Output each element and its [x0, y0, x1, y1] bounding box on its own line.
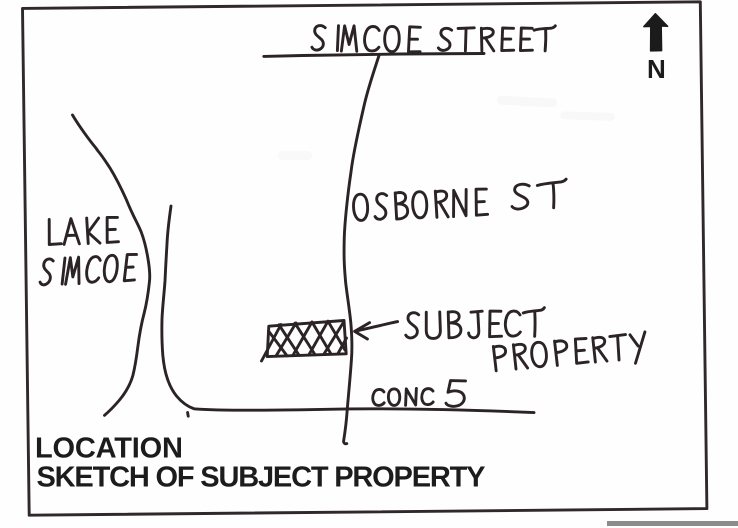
svg-text:LOCATION: LOCATION: [35, 433, 183, 465]
svg-text:N: N: [647, 54, 666, 84]
svg-text:SKETCH OF SUBJECT PROPERTY: SKETCH OF SUBJECT PROPERTY: [37, 462, 486, 494]
